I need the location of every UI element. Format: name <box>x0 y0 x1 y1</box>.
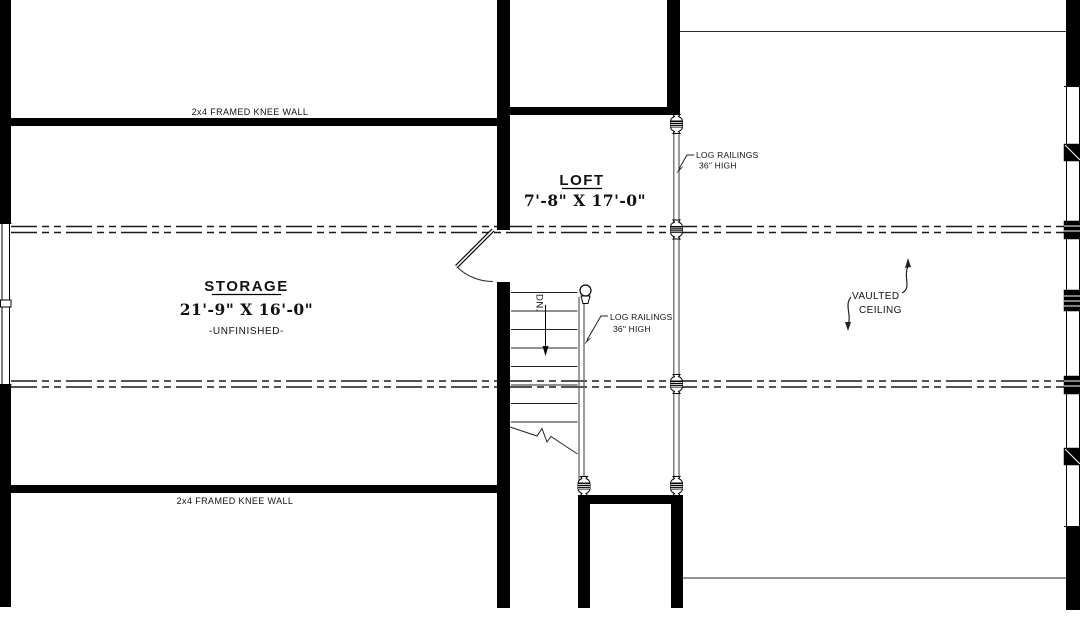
log-railing-stair-label-2: 36" HIGH <box>613 324 651 334</box>
log-railing-loft-label-1: LOG RAILINGS <box>696 150 759 160</box>
stair-railing <box>579 297 584 486</box>
staircase <box>510 293 578 455</box>
loft-dimensions: 7'-8" X 17'-0" <box>524 191 646 210</box>
loft-railing <box>674 115 679 495</box>
log-railing-stair-label-1: LOG RAILINGS <box>610 312 673 322</box>
vaulted-ceiling-label-1: VAULTED <box>852 291 899 302</box>
loft-name: LOFT <box>559 172 604 189</box>
storage-status: -UNFINISHED- <box>209 326 284 337</box>
log-railing-loft-label-2: 36" HIGH <box>699 161 737 171</box>
leader-log-railing-stair <box>584 316 608 345</box>
floor-plan-canvas: 2x4 FRAMED KNEE WALL 2x4 FRAMED KNEE WAL… <box>0 0 1080 617</box>
storage-dimensions: 21'-9" X 16'-0" <box>180 300 314 319</box>
stair-treads <box>511 293 578 423</box>
stair-break-line <box>510 427 578 454</box>
stair-direction-label: DN. <box>534 294 545 312</box>
left-window <box>0 223 12 385</box>
storage-door <box>457 230 494 282</box>
newel-post <box>580 285 591 304</box>
floor-plan-page: 2x4 FRAMED KNEE WALL 2x4 FRAMED KNEE WAL… <box>0 0 1080 617</box>
storage-name: STORAGE <box>204 278 288 295</box>
knee-wall-top-label: 2x4 FRAMED KNEE WALL <box>192 107 309 117</box>
dn-arrow <box>543 305 549 356</box>
vaulted-ceiling-label-2: CEILING <box>859 305 902 316</box>
right-window-wall <box>1064 86 1080 527</box>
knee-wall-bottom-label: 2x4 FRAMED KNEE WALL <box>177 496 294 506</box>
